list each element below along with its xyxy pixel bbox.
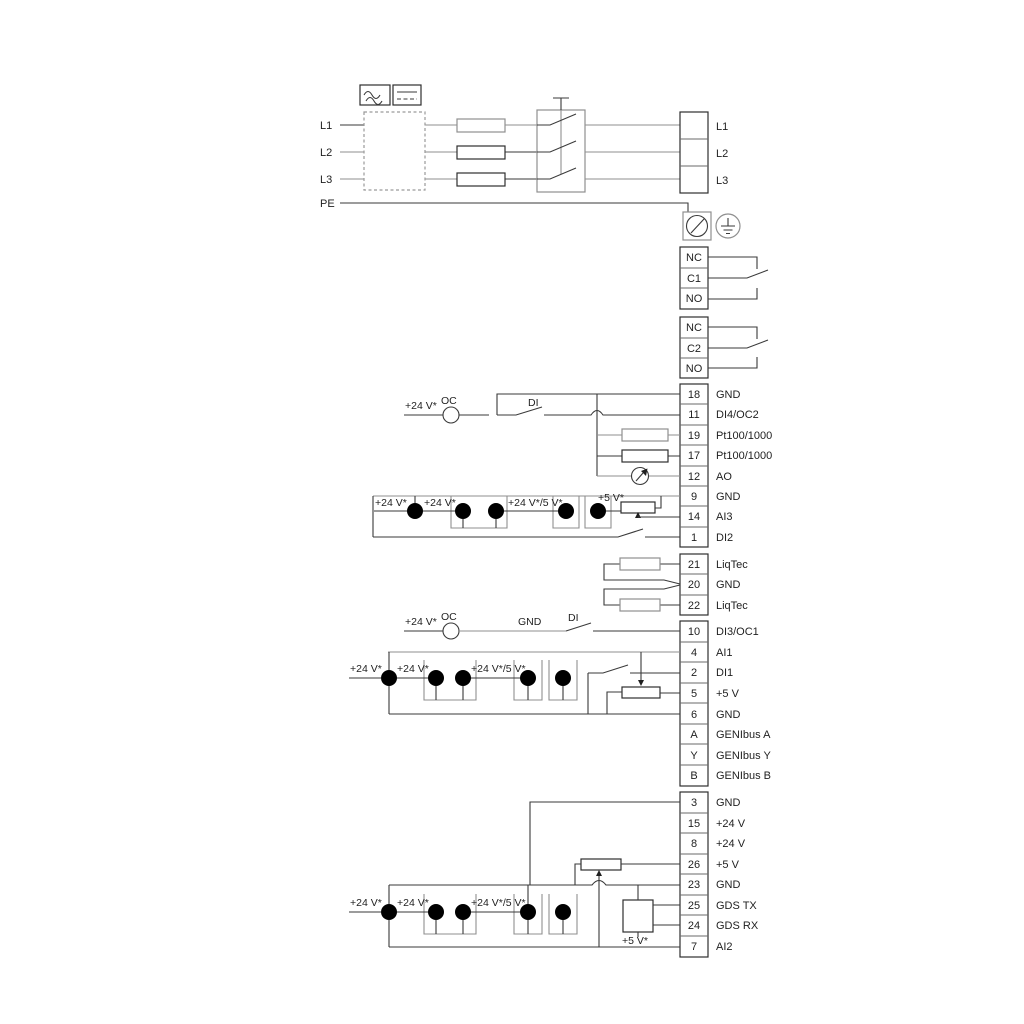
terminal-label: GND — [716, 879, 741, 891]
terminal-label: AI3 — [716, 511, 733, 523]
terminal-number: B — [690, 770, 697, 782]
terminal-number: C1 — [687, 273, 701, 285]
open-collector-symbol — [443, 623, 459, 639]
terminal-label: GDS RX — [716, 920, 759, 932]
terminal-label: +5 V — [716, 859, 740, 871]
terminal-number: 7 — [691, 941, 697, 953]
terminal-number: 18 — [688, 389, 700, 401]
main-switch-symbol — [537, 98, 585, 192]
terminal-number: A — [690, 729, 698, 741]
terminal-number: 20 — [688, 579, 700, 591]
terminal-number: NO — [686, 293, 703, 305]
voltage-annotation: +24 V* — [424, 497, 456, 509]
protective-earth — [340, 203, 740, 240]
gnd-annotation: GND — [518, 616, 542, 628]
dc-symbol-box — [393, 85, 421, 105]
fuse-symbol — [457, 146, 505, 159]
voltage-annotation: +24 V* — [405, 400, 437, 412]
terminal-number: 9 — [691, 491, 697, 503]
analog-io-block: 18 11 19 17 12 9 14 1 GND DI4/OC2 Pt100/… — [680, 384, 772, 547]
gnd-return-wire — [530, 802, 680, 885]
resistor-symbol — [620, 599, 660, 611]
terminal-label: DI3/OC1 — [716, 626, 759, 638]
terminal-number: NC — [686, 322, 702, 334]
current-sensor-symbol — [455, 904, 471, 920]
oc-annotation: OC — [441, 611, 457, 623]
terminal-label: AI2 — [716, 941, 733, 953]
potentiometer-symbol — [621, 496, 661, 518]
terminal-number: 14 — [688, 511, 700, 523]
converter-symbols — [360, 85, 421, 105]
terminal-number: 11 — [688, 409, 699, 421]
terminal-label: Pt100/1000 — [716, 430, 772, 442]
digital-input-switch-symbol — [497, 407, 680, 415]
terminal-number: 26 — [688, 859, 700, 871]
di-annotation: DI — [568, 612, 579, 624]
current-sensor-symbol — [455, 670, 471, 686]
terminal-label: DI2 — [716, 532, 733, 544]
power-section: L1 L2 L3 PE L1 L2 — [320, 85, 740, 240]
relay-changeover-symbol — [708, 257, 768, 299]
voltage-source-symbol — [520, 904, 536, 920]
wire — [505, 152, 537, 179]
power-terminal-block: L1 L2 L3 — [680, 112, 728, 193]
terminal-number: 15 — [688, 818, 700, 830]
terminal-label: GENIbus Y — [716, 750, 771, 762]
power-input-label: L2 — [320, 147, 332, 159]
gds-sensor-box — [623, 885, 680, 937]
voltage-annotation: +24 V* — [405, 616, 437, 628]
voltage-annotation: +24 V* — [397, 663, 429, 675]
pe-wire — [340, 203, 688, 212]
wire — [576, 125, 680, 179]
current-sensor-symbol — [381, 670, 397, 686]
current-sensor-symbol — [488, 503, 504, 519]
analog-io-wiring: +24 V* OC DI +24 V* +24 V* +24 V*/5 V* +… — [373, 394, 680, 537]
voltage-annotation: +24 V*/5 V* — [508, 497, 563, 509]
voltage-source-symbol — [555, 904, 571, 920]
terminal-number: 2 — [691, 667, 697, 679]
terminal-label: GENIbus B — [716, 770, 771, 782]
relay-output-2: NC C2 NO — [680, 317, 768, 378]
potentiometer-symbol — [607, 652, 680, 714]
terminal-label: AI1 — [716, 647, 733, 659]
terminal-number: 1 — [691, 532, 697, 544]
voltage-source-symbol — [590, 503, 606, 519]
fuse-symbol — [457, 173, 505, 186]
power-input-label: L3 — [320, 174, 332, 186]
wiring-diagram: L1 L2 L3 PE L1 L2 — [0, 0, 1024, 1024]
voltage-annotation: +24 V*/5 V* — [471, 663, 526, 675]
terminal-label: GND — [716, 491, 741, 503]
terminal-label: L3 — [716, 175, 728, 187]
terminal-label: DI4/OC2 — [716, 409, 759, 421]
voltage-annotation: +24 V* — [397, 897, 429, 909]
terminal-label: +24 V — [716, 838, 746, 850]
terminal-number: 12 — [688, 471, 700, 483]
terminal-label: AO — [716, 471, 732, 483]
terminal-block — [680, 112, 708, 193]
terminal-number: NO — [686, 363, 703, 375]
terminal-label: GND — [716, 709, 741, 721]
terminal-label: Pt100/1000 — [716, 450, 772, 462]
terminal-label: GND — [716, 797, 741, 809]
digital-input-switch-symbol — [566, 623, 680, 631]
power-input-label: PE — [320, 198, 335, 210]
digital-input-switch-symbol — [373, 529, 680, 537]
voltage-annotation: +24 V* — [350, 897, 382, 909]
terminal-label: +5 V — [716, 688, 740, 700]
voltage-source-symbol — [555, 670, 571, 686]
open-collector-symbol — [443, 407, 459, 423]
power-io-wiring: +24 V* +24 V* +24 V*/5 V* +5 V* — [349, 802, 680, 947]
terminal-number: 22 — [688, 600, 700, 612]
terminal-label: GDS TX — [716, 900, 757, 912]
liqtec-block: 21 20 22 LiqTec GND LiqTec — [604, 554, 748, 615]
terminal-label: GND — [716, 579, 741, 591]
fuse-symbol — [457, 119, 505, 132]
di-annotation: DI — [528, 397, 539, 409]
voltage-source-symbol — [558, 503, 574, 519]
analog-output-meter-icon — [632, 468, 649, 485]
current-sensor-symbol — [381, 904, 397, 920]
digital-io-wiring: +24 V* OC GND DI +24 V* +24 V* +24 V*/5 … — [349, 611, 680, 714]
resistor-symbol — [622, 450, 668, 462]
power-input-label: L1 — [320, 120, 332, 132]
earth-ground-icon — [716, 214, 740, 238]
terminal-number: 23 — [688, 879, 700, 891]
voltage-annotation: +5 V* — [598, 492, 624, 504]
voltage-annotation: +5 V* — [622, 935, 648, 947]
terminal-label: L1 — [716, 121, 728, 133]
terminal-label: L2 — [716, 148, 728, 160]
current-sensor-symbol — [407, 503, 423, 519]
oc-annotation: OC — [441, 395, 457, 407]
relay-changeover-symbol — [708, 327, 768, 368]
drive-dashed-box — [364, 112, 425, 190]
terminal-number: 5 — [691, 688, 697, 700]
terminal-number: 21 — [688, 559, 700, 571]
digital-io-block: 10 4 2 5 6 A Y B DI3/OC1 AI1 DI1 +5 V GN… — [680, 621, 771, 786]
terminal-number: 4 — [691, 647, 697, 659]
terminal-label: LiqTec — [716, 559, 748, 571]
current-sensor-symbol — [428, 670, 444, 686]
terminal-number: 3 — [691, 797, 697, 809]
terminal-number: 8 — [691, 838, 697, 850]
terminal-number: Y — [690, 750, 698, 762]
terminal-number: 25 — [688, 900, 700, 912]
power-io-block: 3 15 8 26 23 25 24 7 GND +24 V +24 V +5 … — [680, 792, 759, 957]
terminal-number: 19 — [688, 430, 700, 442]
voltage-annotation: +24 V*/5 V* — [471, 897, 526, 909]
terminal-label: DI1 — [716, 667, 733, 679]
resistor-symbol — [620, 558, 660, 570]
voltage-source-symbol — [520, 670, 536, 686]
voltage-annotation: +24 V* — [350, 663, 382, 675]
terminal-label: GENIbus A — [716, 729, 771, 741]
terminal-label: +24 V — [716, 818, 746, 830]
terminal-number: NC — [686, 252, 702, 264]
terminal-number: 17 — [688, 450, 700, 462]
terminal-label: LiqTec — [716, 600, 748, 612]
switch-handle — [553, 98, 569, 110]
terminal-number: 6 — [691, 709, 697, 721]
gnd-rail — [389, 881, 680, 886]
wire — [340, 152, 364, 179]
terminal-number: 24 — [688, 920, 700, 932]
terminal-number: 10 — [688, 626, 700, 638]
current-sensor-symbol — [455, 503, 471, 519]
current-sensor-symbol — [428, 904, 444, 920]
terminal-label: GND — [716, 389, 741, 401]
voltage-annotation: +24 V* — [375, 497, 407, 509]
resistor-symbol — [622, 429, 668, 441]
relay-output-1: NC C1 NO — [680, 247, 768, 309]
terminal-number: C2 — [687, 343, 701, 355]
